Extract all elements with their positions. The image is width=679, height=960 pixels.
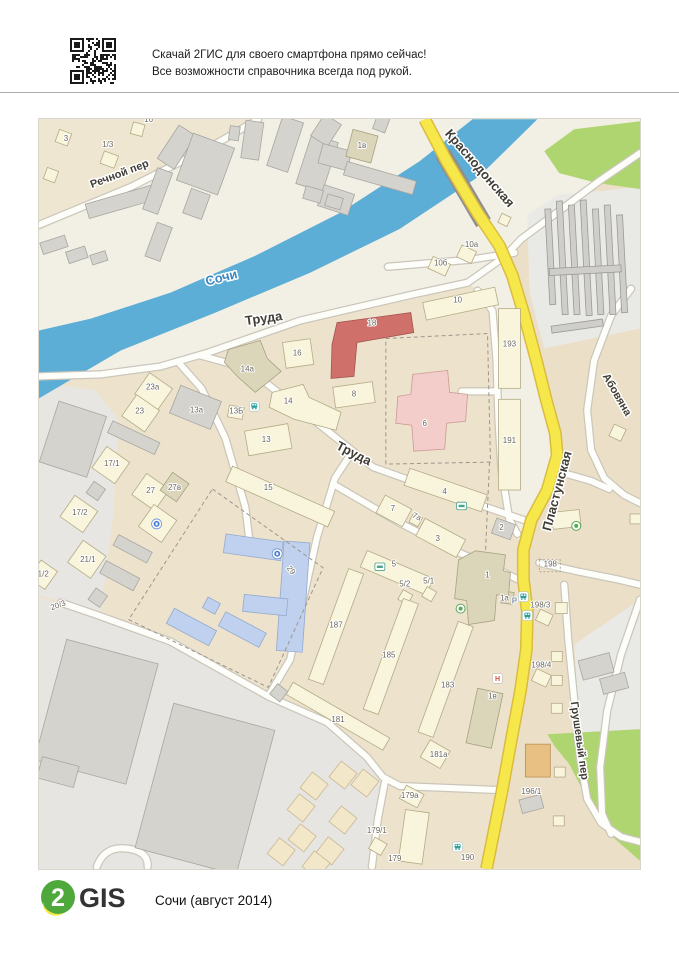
building-label: 179а xyxy=(401,791,419,800)
building-label: 1 xyxy=(485,571,490,580)
shop-icon xyxy=(375,563,385,571)
bus-stop-icon xyxy=(249,401,259,411)
building-label: 185 xyxy=(382,650,396,659)
building-label: 1/3 xyxy=(102,140,114,149)
bus-stop-icon xyxy=(453,842,463,852)
building-label: 198 xyxy=(544,560,558,569)
building-label: 21/1 xyxy=(80,555,96,564)
poi-green-icon xyxy=(572,521,581,530)
building-label: 187 xyxy=(329,621,343,630)
building-label: 198/3 xyxy=(530,601,551,610)
poi-blue-icon xyxy=(272,549,282,559)
building-label: 3 xyxy=(435,534,440,543)
building-label: 27 xyxy=(146,486,155,495)
building-label: 179 xyxy=(388,854,402,863)
building-label: 1в xyxy=(358,141,367,150)
building-label: 198/4 xyxy=(531,660,552,669)
building-label: 190 xyxy=(461,853,475,862)
building-label: 18 xyxy=(367,319,376,328)
building-label: 13Б xyxy=(229,406,243,415)
building-label: 14а xyxy=(241,364,255,373)
building-label: 7 xyxy=(391,504,396,513)
building-label: 16 xyxy=(293,348,302,357)
building-label: 10 xyxy=(453,296,462,305)
bus-stop-icon xyxy=(522,611,532,621)
building-label: 14 xyxy=(284,396,293,405)
shop-icon xyxy=(457,502,467,510)
building-label: 179/1 xyxy=(367,826,388,835)
building-label: 1в xyxy=(488,691,497,700)
building-label: 193 xyxy=(503,339,517,348)
2gis-logo: 2 GIS xyxy=(38,876,158,920)
building-label: 21/2 xyxy=(39,570,49,579)
divider xyxy=(0,92,679,93)
building-label: 191 xyxy=(503,436,517,445)
poi-blue-icon xyxy=(152,519,162,529)
building-label: 5/2 xyxy=(399,580,411,589)
building-label: 5 xyxy=(392,560,397,569)
bus-stop-icon xyxy=(518,592,528,602)
logo-digit: 2 xyxy=(51,884,65,912)
building-label: 4 xyxy=(442,487,447,496)
building-label: 183 xyxy=(441,680,455,689)
building-label: 13а xyxy=(190,405,204,414)
building-label: 27в xyxy=(168,483,181,492)
building-label: 181 xyxy=(331,715,345,724)
building-label: 23а xyxy=(146,382,160,391)
building-label: 2 xyxy=(499,523,504,532)
header-line2: Все возможности справочника всегда под р… xyxy=(152,64,426,81)
building-label: 6 xyxy=(422,419,427,428)
header-text: Скачай 2ГИС для своего смартфона прямо с… xyxy=(152,47,426,81)
building-label: 23 xyxy=(135,406,144,415)
building-label: 15 xyxy=(264,483,273,492)
qr-code-icon xyxy=(70,38,116,86)
building-label: 13 xyxy=(262,435,271,444)
building-label: 181а xyxy=(430,750,448,759)
building-label: 3 xyxy=(64,134,69,143)
svg-text:Н: Н xyxy=(495,676,500,683)
hotel-icon: Н xyxy=(492,673,502,683)
building-label: 10а xyxy=(465,240,479,249)
parking-label: Р xyxy=(512,597,518,606)
building-label: 10б xyxy=(434,259,448,268)
building-label: 5/1 xyxy=(423,577,435,586)
header-line1: Скачай 2ГИС для своего смартфона прямо с… xyxy=(152,47,426,64)
logo-word: GIS xyxy=(79,883,126,913)
map-canvas: 31/3161в10а10б10181614а23а2313а13Б148613… xyxy=(39,119,640,869)
footer-caption: Сочи (август 2014) xyxy=(155,893,272,908)
map-container: 31/3161в10а10б10181614а23а2313а13Б148613… xyxy=(38,118,641,870)
building-label: 196/1 xyxy=(521,787,542,796)
poi-green-icon xyxy=(456,604,465,613)
building-label: 17/2 xyxy=(72,508,88,517)
svg-text:Р: Р xyxy=(512,597,518,606)
building-label: 16 xyxy=(144,119,153,124)
building-label: 1а xyxy=(500,594,509,603)
building-label: 8 xyxy=(352,389,357,398)
building-label: 17/1 xyxy=(104,459,120,468)
